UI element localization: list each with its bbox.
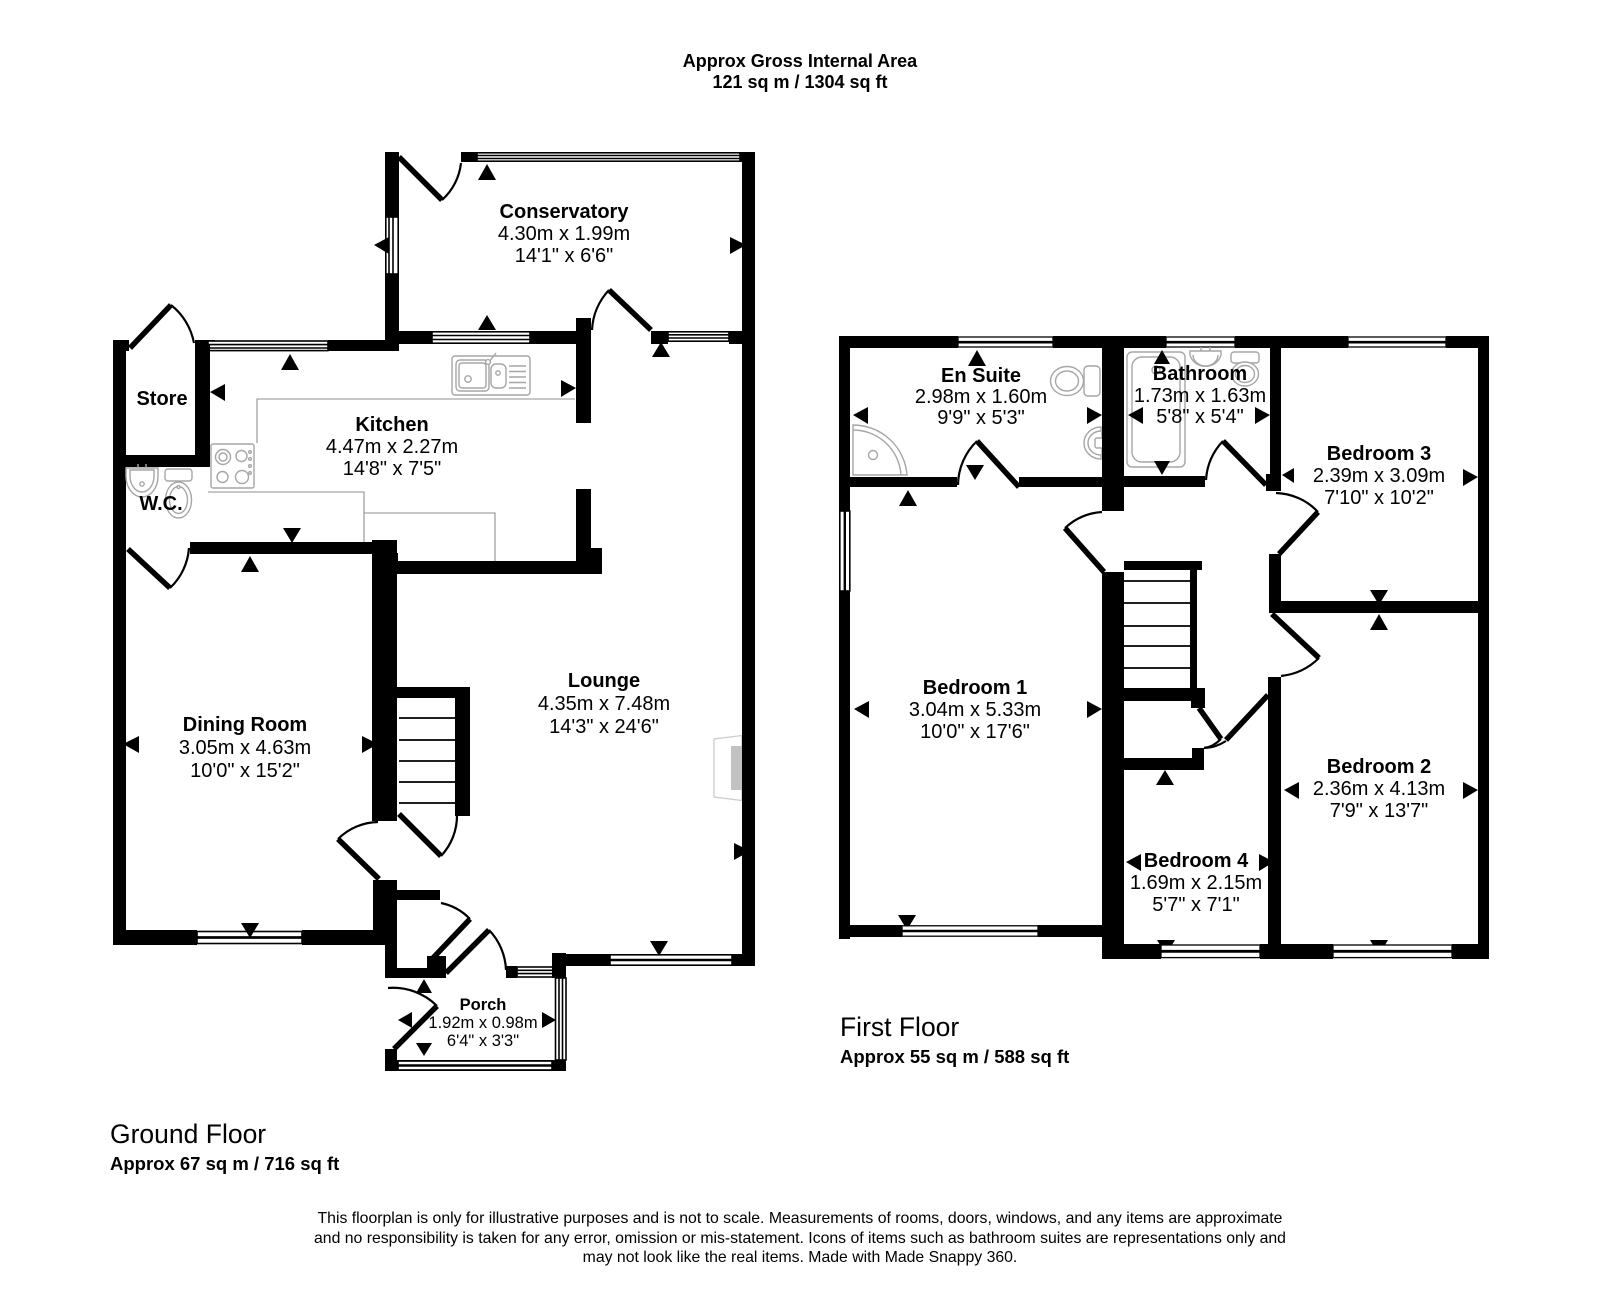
svg-text:Bedroom 4: Bedroom 4: [1144, 850, 1249, 872]
svg-text:Bathroom: Bathroom: [1153, 363, 1247, 385]
svg-text:10'0" x 17'6": 10'0" x 17'6": [920, 721, 1030, 743]
svg-text:3.04m x 5.33m: 3.04m x 5.33m: [909, 699, 1041, 721]
svg-text:14'8" x 7'5": 14'8" x 7'5": [343, 458, 442, 480]
svg-text:3.05m x 4.63m: 3.05m x 4.63m: [179, 737, 311, 759]
svg-text:1.92m x 0.98m: 1.92m x 0.98m: [428, 1014, 537, 1032]
svg-text:Ground Floor: Ground Floor: [110, 1119, 266, 1149]
svg-text:Approx Gross Internal Area: Approx Gross Internal Area: [683, 51, 918, 71]
svg-text:Approx 67 sq m / 716 sq ft: Approx 67 sq m / 716 sq ft: [110, 1153, 339, 1174]
svg-text:7'10" x 10'2": 7'10" x 10'2": [1324, 487, 1434, 509]
svg-text:Bedroom 1: Bedroom 1: [923, 677, 1027, 699]
svg-text:Dining Room: Dining Room: [183, 714, 307, 736]
svg-text:Conservatory: Conservatory: [500, 201, 630, 223]
svg-text:9'9" x 5'3": 9'9" x 5'3": [937, 407, 1024, 429]
svg-text:First Floor: First Floor: [840, 1012, 959, 1042]
svg-text:4.30m x 1.99m: 4.30m x 1.99m: [498, 223, 630, 245]
svg-text:Porch: Porch: [460, 996, 507, 1014]
svg-text:1.69m x 2.15m: 1.69m x 2.15m: [1130, 872, 1262, 894]
svg-text:4.35m x 7.48m: 4.35m x 7.48m: [538, 693, 670, 715]
svg-text:Approx 55 sq m / 588 sq ft: Approx 55 sq m / 588 sq ft: [840, 1046, 1069, 1067]
svg-text:may not look like the real ite: may not look like the real items. Made w…: [583, 1249, 1018, 1266]
svg-text:2.36m x 4.13m: 2.36m x 4.13m: [1313, 778, 1445, 800]
svg-text:En Suite: En Suite: [941, 365, 1021, 387]
svg-text:5'8" x 5'4": 5'8" x 5'4": [1156, 406, 1243, 428]
svg-text:Kitchen: Kitchen: [355, 414, 428, 436]
svg-text:6'4" x 3'3": 6'4" x 3'3": [447, 1032, 519, 1050]
svg-text:5'7" x 7'1": 5'7" x 7'1": [1152, 894, 1239, 916]
svg-text:1.73m x 1.63m: 1.73m x 1.63m: [1134, 385, 1266, 407]
svg-text:4.47m x 2.27m: 4.47m x 2.27m: [326, 436, 458, 458]
svg-text:and no responsibility is taken: and no responsibility is taken for any e…: [314, 1230, 1286, 1247]
svg-text:2.39m x 3.09m: 2.39m x 3.09m: [1313, 465, 1445, 487]
svg-text:121 sq m / 1304 sq ft: 121 sq m / 1304 sq ft: [712, 72, 887, 92]
svg-text:W.C.: W.C.: [139, 493, 182, 515]
svg-text:Store: Store: [136, 388, 187, 410]
svg-text:Bedroom 3: Bedroom 3: [1327, 443, 1431, 465]
svg-text:14'1" x 6'6": 14'1" x 6'6": [515, 245, 614, 267]
svg-text:This floorplan is only for ill: This floorplan is only for illustrative …: [318, 1210, 1283, 1227]
svg-text:10'0" x 15'2": 10'0" x 15'2": [190, 760, 300, 782]
svg-text:Bedroom 2: Bedroom 2: [1327, 756, 1431, 778]
svg-text:7'9" x 13'7": 7'9" x 13'7": [1330, 800, 1429, 822]
svg-text:Lounge: Lounge: [568, 670, 640, 692]
svg-text:14'3" x 24'6": 14'3" x 24'6": [549, 716, 659, 738]
svg-text:2.98m x 1.60m: 2.98m x 1.60m: [915, 386, 1047, 408]
